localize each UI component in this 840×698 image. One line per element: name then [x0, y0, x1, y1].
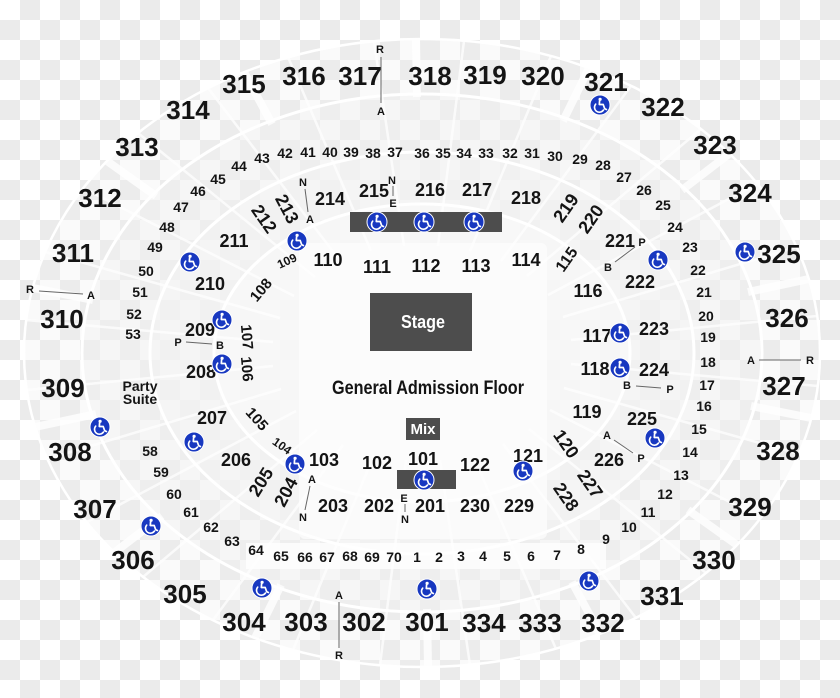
svg-text:216: 216 — [415, 180, 445, 200]
svg-text:106: 106 — [237, 356, 256, 382]
svg-text:Stage: Stage — [401, 312, 445, 332]
svg-text:230: 230 — [460, 496, 490, 516]
svg-text:59: 59 — [153, 464, 169, 480]
svg-text:A: A — [335, 590, 343, 602]
svg-text:P: P — [637, 453, 644, 465]
svg-text:30: 30 — [547, 148, 563, 164]
svg-text:301: 301 — [405, 607, 448, 637]
svg-text:321: 321 — [584, 67, 627, 97]
svg-text:325: 325 — [757, 239, 800, 269]
svg-text:203: 203 — [318, 496, 348, 516]
svg-text:26: 26 — [636, 182, 652, 198]
svg-text:327: 327 — [762, 371, 805, 401]
svg-text:21: 21 — [696, 284, 712, 300]
svg-text:B: B — [216, 340, 224, 352]
svg-text:32: 32 — [502, 145, 518, 161]
svg-text:29: 29 — [572, 151, 588, 167]
svg-text:27: 27 — [616, 169, 632, 185]
svg-text:224: 224 — [639, 360, 669, 380]
svg-text:333: 333 — [518, 608, 561, 638]
svg-text:65: 65 — [273, 548, 289, 564]
svg-text:7: 7 — [553, 547, 561, 563]
svg-text:General Admission Floor: General Admission Floor — [332, 378, 525, 399]
svg-text:210: 210 — [195, 274, 225, 294]
svg-text:322: 322 — [641, 92, 684, 122]
svg-text:207: 207 — [197, 408, 227, 428]
svg-text:218: 218 — [511, 188, 541, 208]
svg-text:N: N — [299, 177, 307, 189]
svg-text:38: 38 — [365, 145, 381, 161]
svg-text:302: 302 — [342, 607, 385, 637]
svg-text:332: 332 — [581, 608, 624, 638]
svg-text:16: 16 — [696, 398, 712, 414]
svg-text:37: 37 — [387, 144, 403, 160]
svg-text:119: 119 — [572, 402, 601, 422]
svg-text:28: 28 — [595, 157, 611, 173]
svg-text:229: 229 — [504, 496, 534, 516]
svg-text:64: 64 — [248, 542, 264, 558]
svg-text:N: N — [388, 175, 396, 187]
svg-text:39: 39 — [343, 144, 359, 160]
svg-text:311: 311 — [52, 238, 94, 268]
svg-text:331: 331 — [640, 581, 683, 611]
svg-text:1: 1 — [413, 549, 421, 565]
svg-text:17: 17 — [699, 377, 715, 393]
svg-text:R: R — [26, 284, 34, 296]
svg-text:P: P — [666, 384, 673, 396]
svg-text:303: 303 — [284, 607, 327, 637]
svg-text:315: 315 — [222, 69, 265, 99]
svg-text:201: 201 — [415, 496, 445, 516]
svg-text:E: E — [389, 198, 396, 210]
svg-text:3: 3 — [457, 548, 465, 564]
svg-text:110: 110 — [313, 250, 342, 270]
svg-text:41: 41 — [300, 144, 316, 160]
svg-text:15: 15 — [691, 421, 707, 437]
svg-text:19: 19 — [700, 329, 716, 345]
svg-text:49: 49 — [147, 239, 163, 255]
svg-text:R: R — [335, 650, 343, 662]
svg-text:67: 67 — [319, 549, 335, 565]
svg-text:9: 9 — [602, 531, 610, 547]
svg-text:34: 34 — [456, 145, 472, 161]
svg-text:A: A — [747, 355, 755, 367]
svg-text:24: 24 — [667, 219, 683, 235]
svg-text:317: 317 — [338, 61, 381, 91]
svg-text:A: A — [603, 430, 611, 442]
svg-text:320: 320 — [521, 61, 564, 91]
svg-text:R: R — [376, 44, 384, 56]
svg-text:318: 318 — [408, 61, 451, 91]
svg-text:62: 62 — [203, 519, 219, 535]
svg-text:324: 324 — [728, 178, 772, 208]
svg-text:18: 18 — [700, 354, 716, 370]
svg-text:70: 70 — [386, 549, 402, 565]
svg-text:309: 309 — [41, 373, 84, 403]
svg-text:306: 306 — [111, 545, 154, 575]
svg-text:12: 12 — [657, 486, 673, 502]
svg-text:53: 53 — [125, 326, 141, 342]
svg-text:209: 209 — [185, 320, 215, 340]
svg-text:40: 40 — [322, 144, 338, 160]
svg-text:61: 61 — [183, 504, 199, 520]
svg-text:101: 101 — [408, 449, 438, 469]
svg-text:31: 31 — [524, 145, 540, 161]
svg-text:A: A — [87, 290, 95, 302]
svg-text:312: 312 — [78, 183, 121, 213]
svg-text:14: 14 — [682, 444, 698, 460]
svg-text:68: 68 — [342, 548, 358, 564]
svg-text:66: 66 — [297, 549, 313, 565]
svg-text:N: N — [401, 514, 409, 526]
svg-text:69: 69 — [364, 549, 380, 565]
svg-text:45: 45 — [210, 171, 226, 187]
svg-text:308: 308 — [48, 437, 91, 467]
svg-text:A: A — [377, 106, 385, 118]
svg-text:N: N — [299, 512, 307, 524]
svg-text:Suite: Suite — [123, 391, 157, 407]
svg-text:35: 35 — [435, 145, 451, 161]
svg-text:116: 116 — [573, 281, 602, 301]
svg-text:48: 48 — [159, 219, 175, 235]
svg-text:P: P — [638, 237, 645, 249]
svg-text:B: B — [623, 380, 631, 392]
svg-text:11: 11 — [641, 504, 656, 520]
svg-text:25: 25 — [655, 197, 671, 213]
svg-text:330: 330 — [692, 545, 735, 575]
svg-text:60: 60 — [166, 486, 182, 502]
svg-text:20: 20 — [698, 308, 714, 324]
svg-text:122: 122 — [460, 455, 490, 475]
svg-text:42: 42 — [277, 145, 293, 161]
svg-text:58: 58 — [142, 443, 158, 459]
svg-text:208: 208 — [186, 362, 216, 382]
svg-text:47: 47 — [173, 199, 189, 215]
svg-text:305: 305 — [163, 579, 206, 609]
svg-text:P: P — [174, 337, 181, 349]
svg-text:43: 43 — [254, 150, 270, 166]
svg-text:206: 206 — [221, 450, 251, 470]
svg-text:4: 4 — [479, 548, 487, 564]
svg-text:5: 5 — [503, 548, 511, 564]
svg-text:217: 217 — [462, 180, 492, 200]
svg-text:117: 117 — [582, 326, 611, 346]
svg-text:111: 111 — [363, 257, 391, 277]
svg-text:225: 225 — [627, 409, 657, 429]
svg-text:226: 226 — [594, 450, 624, 470]
svg-text:36: 36 — [414, 145, 430, 161]
svg-text:334: 334 — [462, 608, 506, 638]
svg-text:44: 44 — [231, 158, 247, 174]
svg-text:307: 307 — [73, 494, 116, 524]
svg-text:319: 319 — [463, 60, 506, 90]
svg-text:107: 107 — [237, 324, 256, 350]
svg-text:310: 310 — [40, 304, 83, 334]
svg-text:223: 223 — [639, 319, 669, 339]
svg-text:51: 51 — [132, 284, 148, 300]
svg-text:114: 114 — [511, 250, 540, 270]
svg-text:118: 118 — [580, 359, 609, 379]
svg-text:E: E — [400, 493, 407, 505]
svg-text:214: 214 — [315, 189, 345, 209]
svg-text:215: 215 — [359, 181, 389, 201]
svg-text:202: 202 — [364, 496, 394, 516]
svg-text:6: 6 — [527, 548, 535, 564]
svg-text:222: 222 — [625, 272, 655, 292]
svg-text:13: 13 — [673, 467, 689, 483]
svg-text:304: 304 — [222, 607, 266, 637]
svg-text:A: A — [306, 214, 314, 226]
svg-text:102: 102 — [362, 453, 392, 473]
svg-text:22: 22 — [690, 262, 706, 278]
svg-text:B: B — [604, 262, 612, 274]
svg-text:113: 113 — [461, 256, 490, 276]
svg-text:316: 316 — [282, 61, 325, 91]
svg-text:63: 63 — [224, 533, 240, 549]
svg-text:50: 50 — [138, 263, 154, 279]
svg-text:52: 52 — [126, 306, 142, 322]
svg-text:326: 326 — [765, 303, 808, 333]
svg-text:328: 328 — [756, 436, 799, 466]
svg-text:329: 329 — [728, 492, 771, 522]
svg-text:221: 221 — [605, 231, 635, 251]
svg-text:Mix: Mix — [410, 421, 436, 438]
svg-text:313: 313 — [115, 132, 158, 162]
svg-text:323: 323 — [693, 130, 736, 160]
svg-text:211: 211 — [219, 231, 248, 251]
svg-text:23: 23 — [682, 239, 698, 255]
svg-text:A: A — [308, 474, 316, 486]
svg-text:112: 112 — [411, 256, 440, 276]
svg-text:2: 2 — [435, 549, 443, 565]
svg-text:33: 33 — [478, 145, 494, 161]
svg-text:314: 314 — [166, 95, 210, 125]
svg-text:R: R — [806, 355, 814, 367]
svg-text:8: 8 — [577, 541, 585, 557]
svg-text:10: 10 — [621, 519, 637, 535]
svg-text:103: 103 — [309, 450, 339, 470]
svg-text:46: 46 — [190, 183, 206, 199]
